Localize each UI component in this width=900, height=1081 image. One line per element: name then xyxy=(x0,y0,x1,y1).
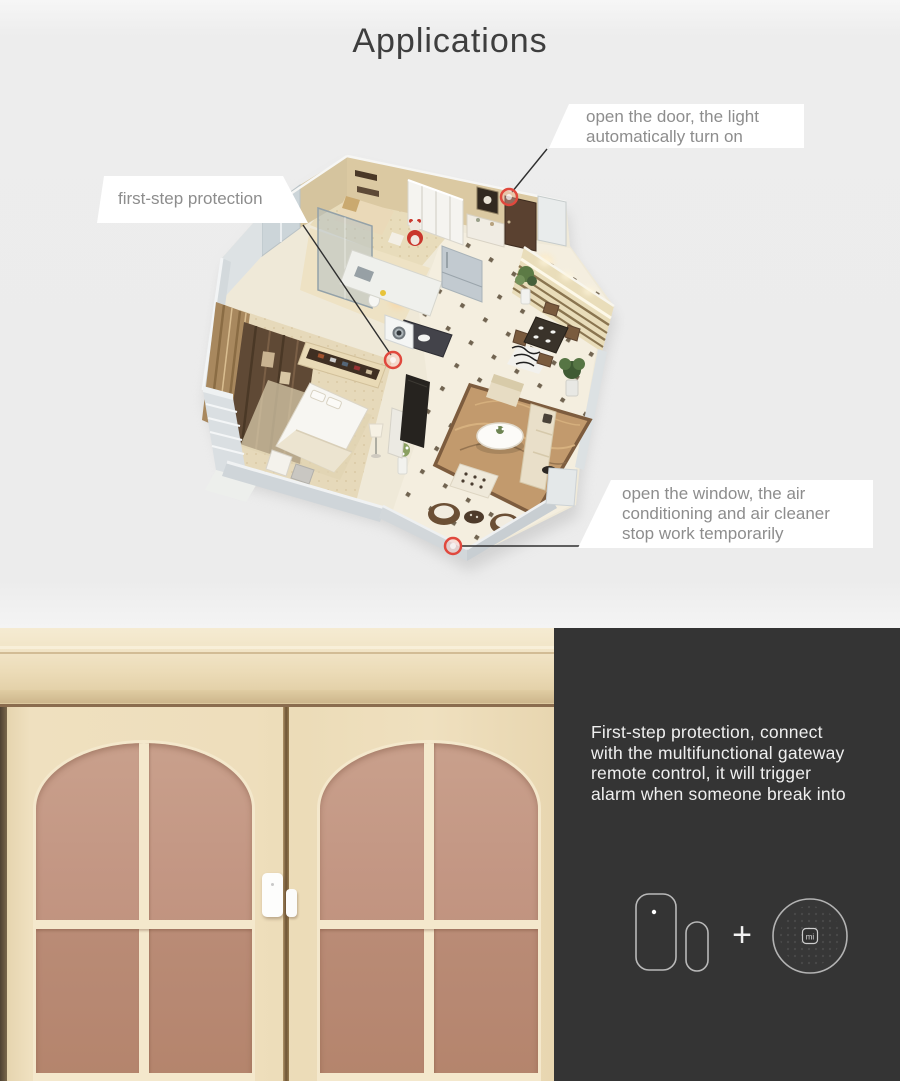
applications-section: Applications xyxy=(0,0,900,628)
info-text-line: First-step protection, connect xyxy=(591,722,846,743)
mi-logo: mi xyxy=(806,933,815,942)
info-text-line: with the multifunctional gateway xyxy=(591,743,846,764)
product-icons: + mi xyxy=(554,876,900,1006)
callout-open-window: open the window, the air conditioning an… xyxy=(578,480,873,548)
plus-icon: + xyxy=(732,916,752,954)
gateway-icon: mi xyxy=(773,899,847,973)
door-sensor-main-unit xyxy=(262,873,283,917)
callout-text-line: open the door, the light xyxy=(586,107,804,127)
info-panel-text: First-step protection, connect with the … xyxy=(591,722,846,804)
coffee-table xyxy=(476,423,524,454)
door-sensor-magnet xyxy=(286,889,297,917)
door-photo-section: First-step protection, connect with the … xyxy=(0,628,900,1081)
window-sensor-marker-icon xyxy=(445,538,461,554)
info-text-line: remote control, it will trigger xyxy=(591,763,846,784)
door-top-molding xyxy=(0,628,554,707)
callout-first-step: first-step protection xyxy=(97,176,308,223)
callout-text-line: stop work temporarily xyxy=(622,524,873,544)
bedroom-door-sensor-marker-icon xyxy=(385,352,401,368)
callout-text-line: open the window, the air xyxy=(622,484,873,504)
info-panel: First-step protection, connect with the … xyxy=(554,628,900,1081)
callout-text-line: first-step protection xyxy=(118,189,308,209)
callout-text-line: conditioning and air cleaner xyxy=(622,504,873,524)
callout-open-door: open the door, the light automatically t… xyxy=(549,104,804,148)
info-text-line: alarm when someone break into xyxy=(591,784,846,805)
left-door-glass xyxy=(36,743,252,1081)
section-title: Applications xyxy=(0,22,900,61)
callout-text-line: automatically turn on xyxy=(586,127,804,147)
door-frame-shadow xyxy=(0,707,7,1081)
door-photo xyxy=(0,628,554,1081)
right-door-glass xyxy=(320,743,538,1081)
door-sensor-icon xyxy=(636,894,708,971)
entry-door-sensor-marker-icon xyxy=(501,189,517,205)
